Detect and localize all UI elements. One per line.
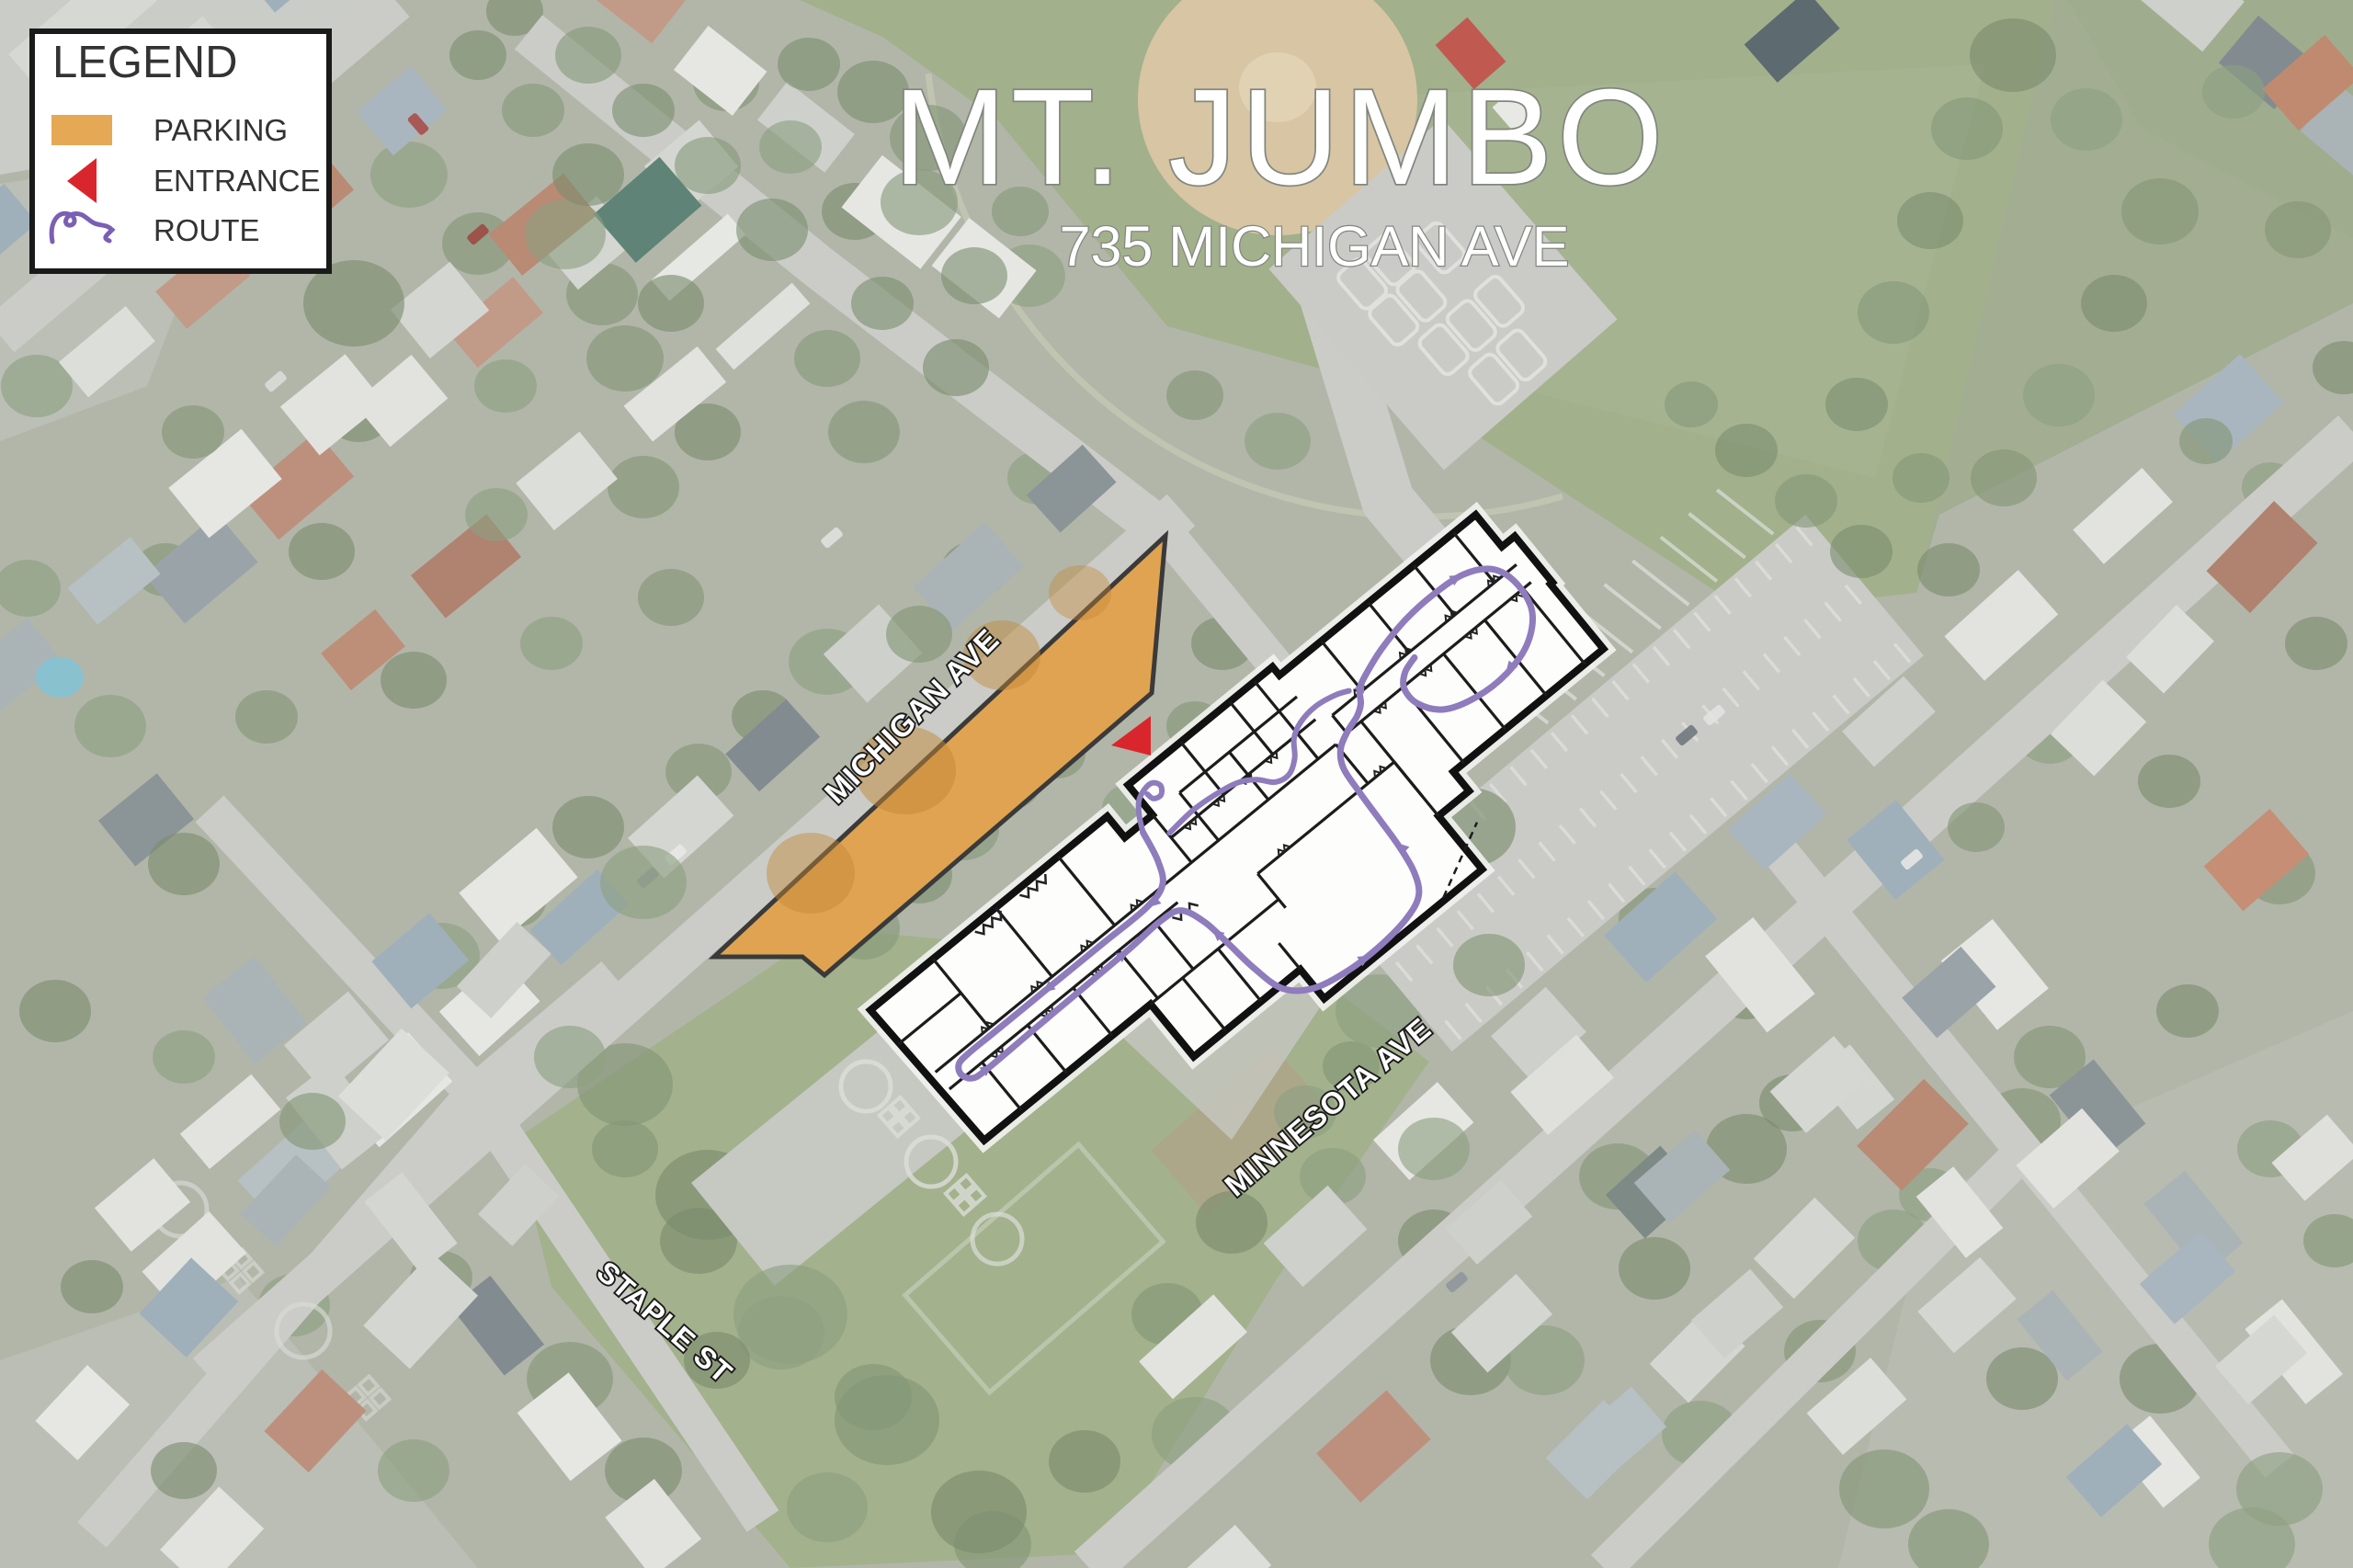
svg-text:MT. JUMBO: MT. JUMBO <box>893 62 1668 213</box>
svg-text:ROUTE: ROUTE <box>153 213 260 247</box>
svg-text:ENTRANCE: ENTRANCE <box>153 164 321 198</box>
svg-text:735 MICHIGAN AVE: 735 MICHIGAN AVE <box>1060 215 1570 278</box>
svg-text:PARKING: PARKING <box>153 113 288 147</box>
svg-text:LEGEND: LEGEND <box>52 38 238 87</box>
